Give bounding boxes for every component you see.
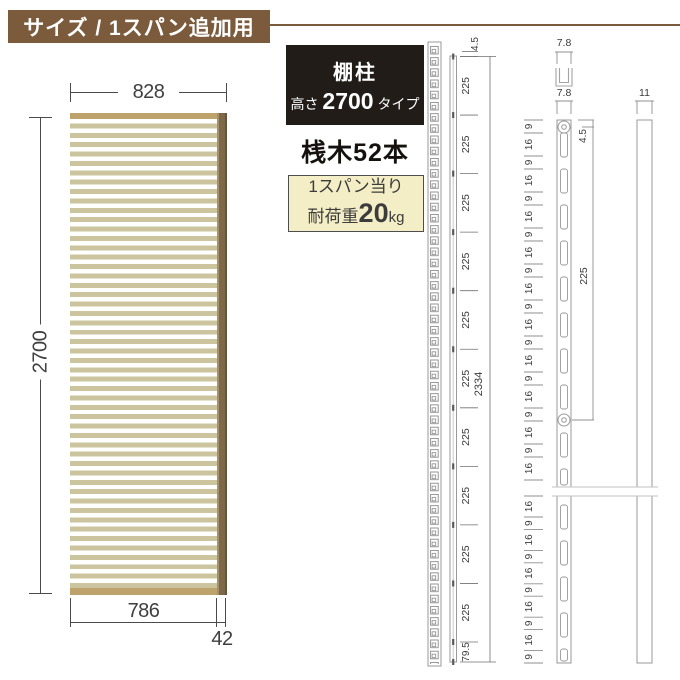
slot-pattern-label: 9 [524,587,535,593]
slot-pattern-label: 16 [524,319,535,331]
rail-pitch-label: 225 [460,311,472,329]
rail-top-offset-label: 4.5 [470,37,481,51]
post-cap-width-label: 7.8 [557,37,572,49]
slot-pattern-label: 9 [524,159,535,165]
slot-pattern-label: 16 [524,211,535,223]
hole-offset-label: 4.5 [578,129,589,143]
post-slot [561,349,568,373]
rail-pitch-label: 225 [460,194,472,212]
slot-pattern-label: 9 [524,375,535,381]
slot-pattern-label: 16 [524,534,535,546]
post-slot [561,541,568,565]
slot-pattern-label: 9 [524,411,535,417]
rail-bottom-offset-label: 79.5 [461,642,472,662]
spec-diagram-page: サイズ / 1スパン追加用 棚柱 高さ 2700 タイプ 桟木52本 1スパン当… [0,0,680,680]
rail-pitch-label: 225 [460,428,472,446]
slot-pattern-label: 9 [524,520,535,526]
post-slot [561,241,568,265]
slot-pattern-label: 9 [524,654,535,660]
slot-pattern-label: 16 [524,501,535,513]
slot-pattern-label: 9 [524,123,535,129]
post-slot [561,505,568,529]
post-slot [561,169,568,193]
slot-pattern-label: 16 [524,391,535,403]
post-slot [561,577,568,601]
slot-pattern-label: 16 [524,139,535,151]
post-front-width-label: 7.8 [557,87,572,99]
slot-pattern-label: 9 [524,267,535,273]
slot-pattern-label: 16 [524,567,535,579]
slot-pattern-label: 9 [524,553,535,559]
slot-pattern-label: 9 [524,195,535,201]
post-slot [561,205,568,229]
post-slot [561,469,568,485]
slot-pattern-label: 16 [524,463,535,475]
slot-pattern-label: 16 [524,427,535,439]
rail-pitch-label: 225 [460,77,472,95]
post-slot [561,433,568,457]
slot-pattern-label: 16 [524,175,535,187]
post-slot [561,649,568,661]
slot-pattern-label: 16 [524,634,535,646]
slot-pattern-label: 9 [524,620,535,626]
slot-pattern-label: 9 [524,339,535,345]
post-side-upper [637,120,652,487]
hole-pitch-label: 225 [578,267,590,285]
post-side-width-label: 11 [639,87,650,99]
post-side-lower [637,496,652,663]
slot-pattern-label: 9 [524,303,535,309]
cap-cross-section [556,68,572,86]
post-slot [561,313,568,337]
rail-slot-holes [429,44,440,664]
slot-pattern-label: 16 [524,247,535,259]
rail-pitch-label: 225 [460,604,472,622]
slot-pattern-label: 16 [524,601,535,613]
slot-pattern-label: 16 [524,355,535,367]
rail-total-label: 2334 [473,372,485,396]
rail-pitch-label: 225 [460,487,472,505]
rail-pitch-label: 225 [460,253,472,271]
technical-drawing: 2252252252252252252252252252254.579.5233… [0,0,680,680]
slot-pattern-label: 9 [524,447,535,453]
slot-pattern-label: 9 [524,231,535,237]
rail-pitch-label: 225 [460,370,472,388]
post-slot [561,133,568,157]
slot-pattern-label: 16 [524,283,535,295]
post-slot [561,277,568,301]
post-slot [561,613,568,637]
rail-pitch-label: 225 [460,545,472,563]
rail-pitch-label: 225 [460,135,472,153]
post-slot [561,385,568,409]
